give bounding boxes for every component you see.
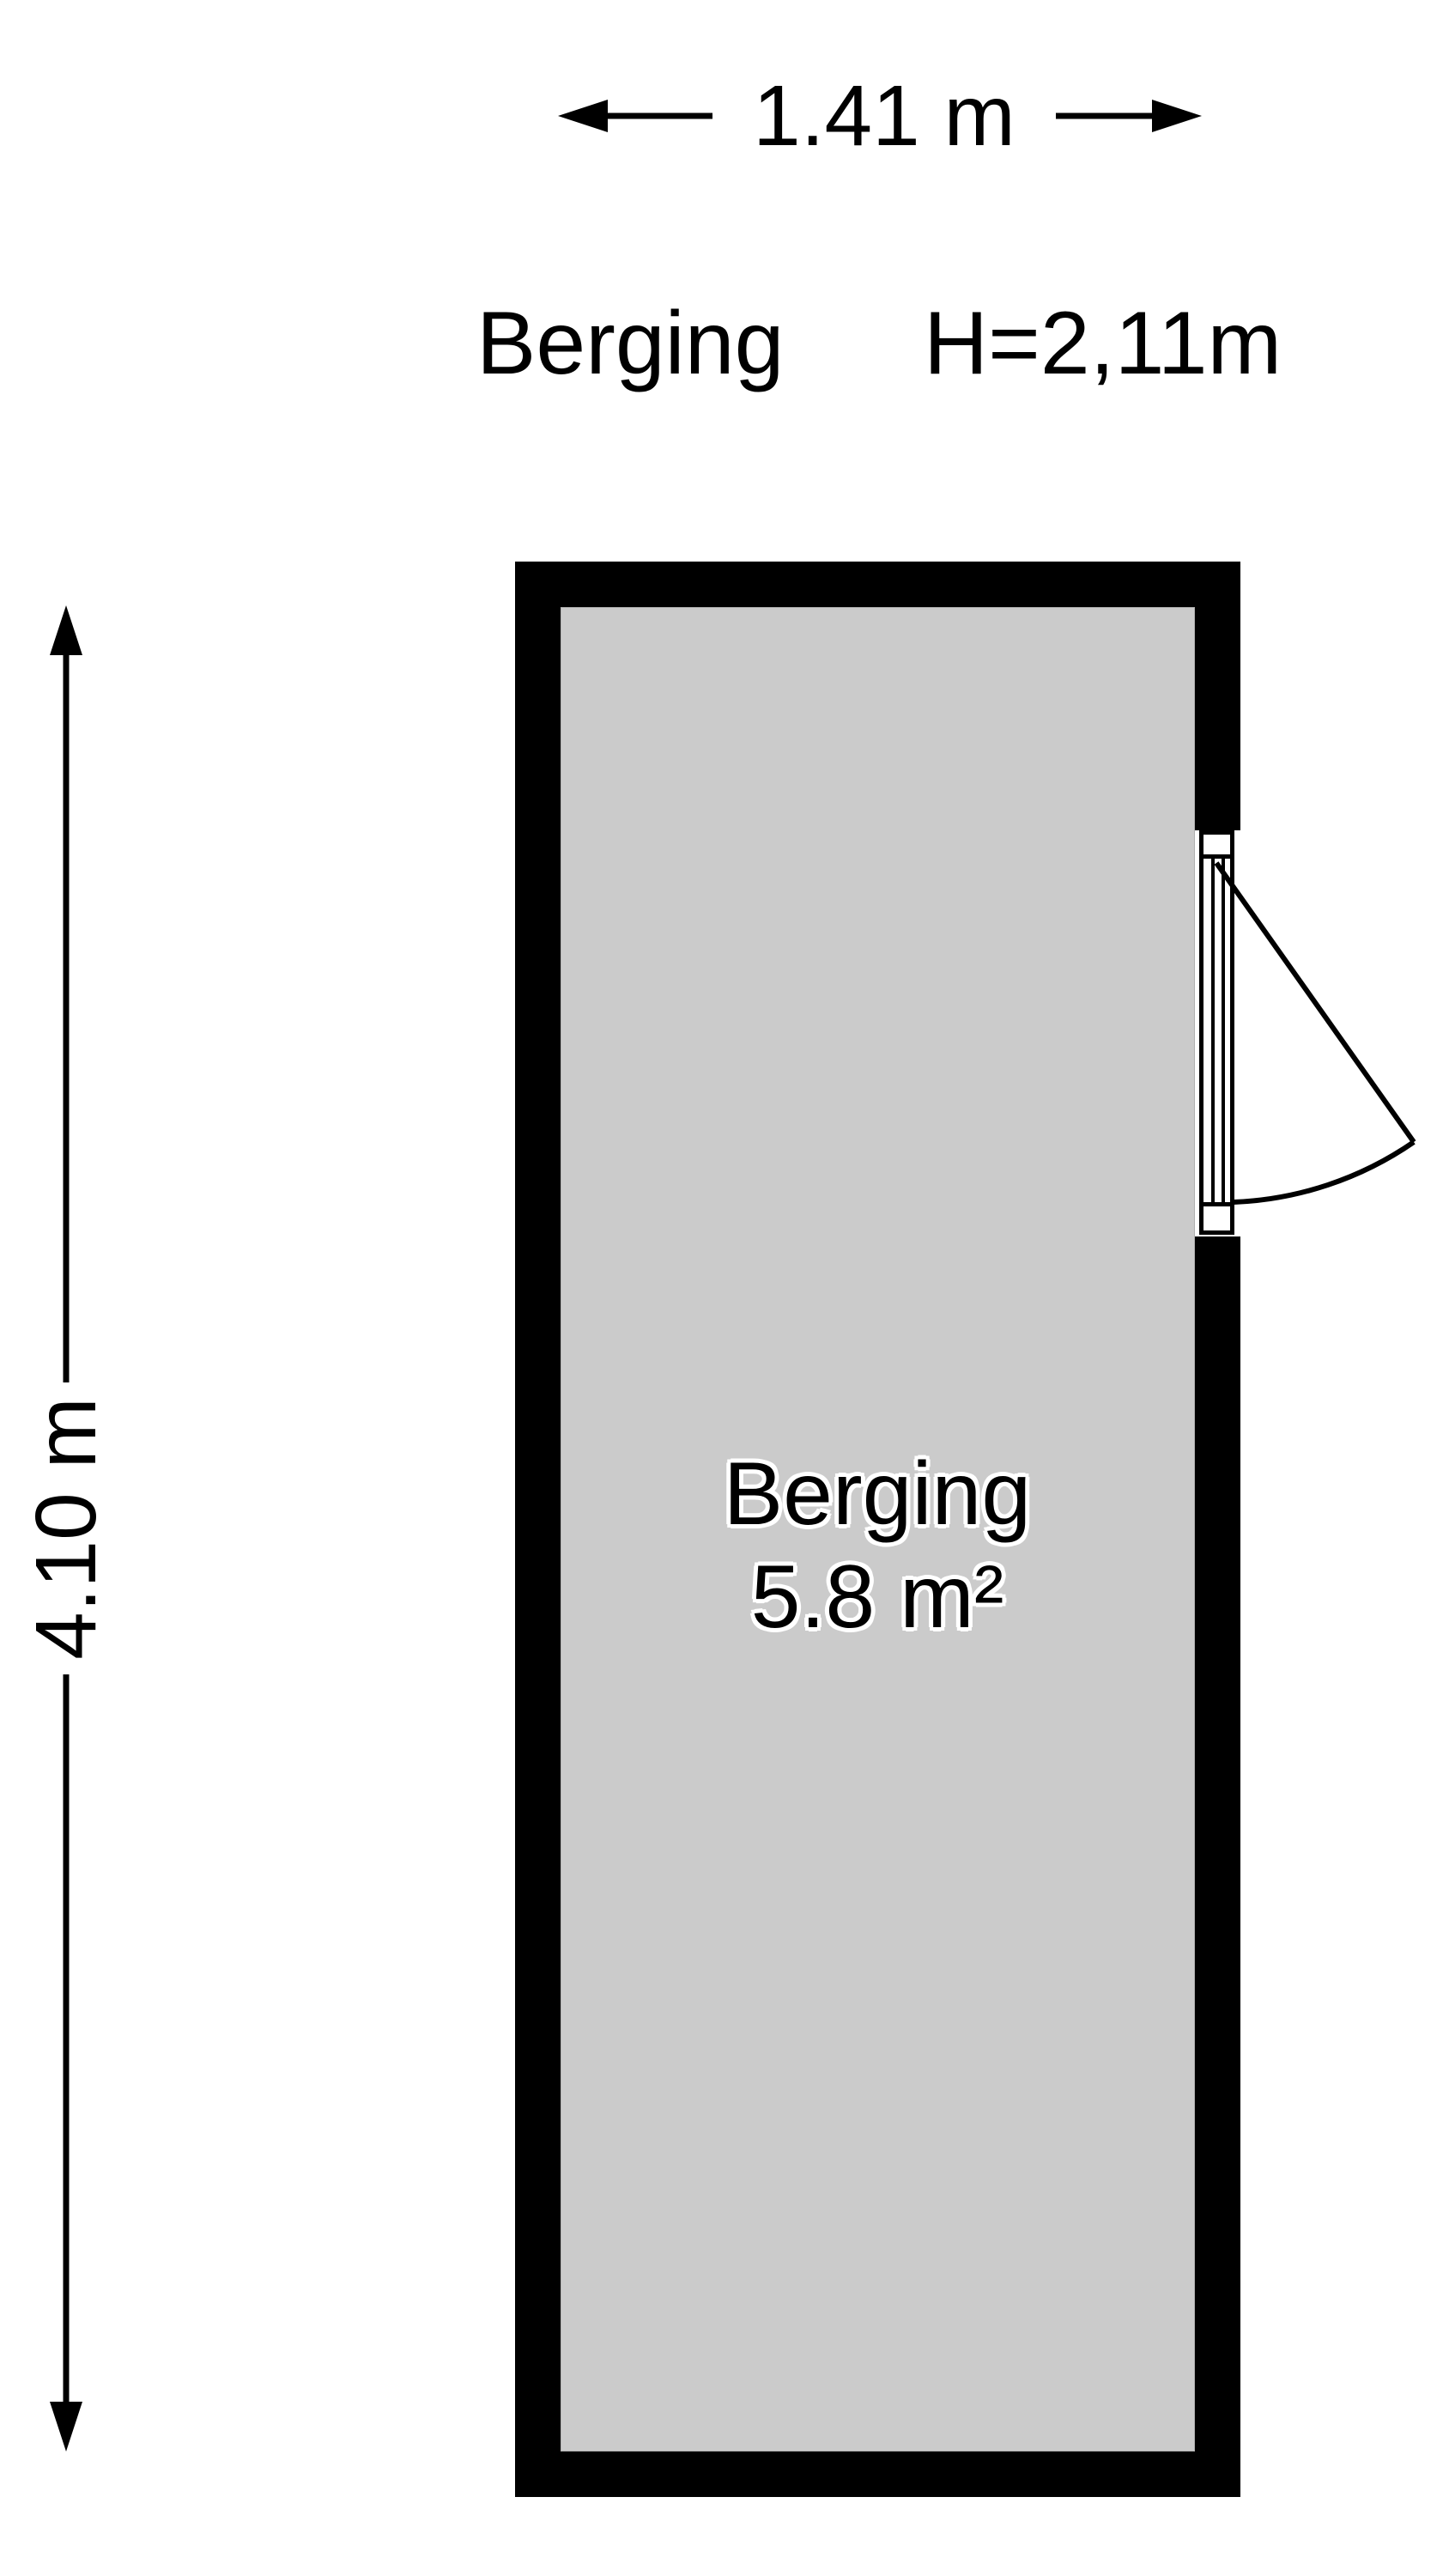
plan-title: Berging (476, 299, 784, 388)
width-dimension-arrowhead-left (558, 100, 608, 132)
door-open-leaf-line (1216, 863, 1414, 1142)
height-dimension-arrowhead-bottom (50, 2402, 82, 2451)
height-dimension-arrowhead-top (50, 605, 82, 655)
width-dimension-arrowhead-right (1152, 100, 1202, 132)
room-label: Berging 5.8 m² (620, 1443, 1135, 1649)
width-dimension-label: 1.41 m (712, 71, 1056, 161)
ceiling-height-label: H=2,11m (924, 299, 1282, 388)
door-swing (1185, 846, 1434, 1215)
room-name-label: Berging (620, 1443, 1135, 1546)
door-swing-arc (1234, 1142, 1414, 1202)
height-dimension-label: 4.10 m (18, 1382, 114, 1674)
floor-plan-page: 1.41 m Berging H=2,11m 4.10 m Berging 5.… (0, 0, 1449, 2576)
room-area-label: 5.8 m² (620, 1546, 1135, 1649)
